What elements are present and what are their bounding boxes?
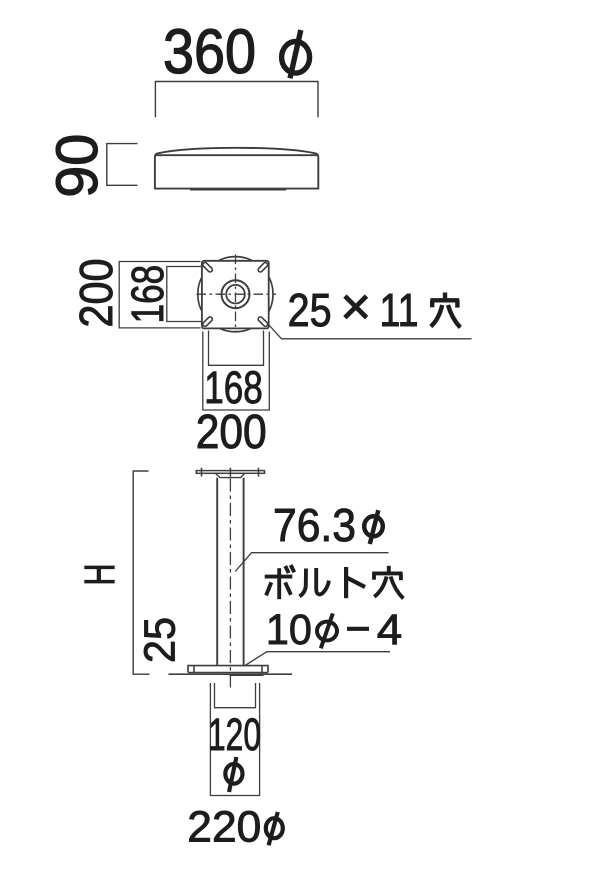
svg-text:120: 120 <box>208 709 261 760</box>
svg-text:168: 168 <box>122 265 173 324</box>
svg-text:360: 360 <box>163 17 256 87</box>
svg-text:76.3: 76.3 <box>273 499 356 551</box>
svg-text:25: 25 <box>288 284 332 336</box>
svg-text:220: 220 <box>187 803 261 852</box>
svg-text:200: 200 <box>70 259 122 328</box>
svg-text:×: × <box>340 278 371 337</box>
svg-text:90: 90 <box>45 134 110 198</box>
svg-text:200: 200 <box>196 406 267 459</box>
svg-text:25: 25 <box>136 617 184 663</box>
svg-text:11: 11 <box>380 284 419 336</box>
svg-text:H: H <box>77 564 124 586</box>
svg-text:4: 4 <box>377 606 403 654</box>
svg-text:10: 10 <box>266 607 312 654</box>
